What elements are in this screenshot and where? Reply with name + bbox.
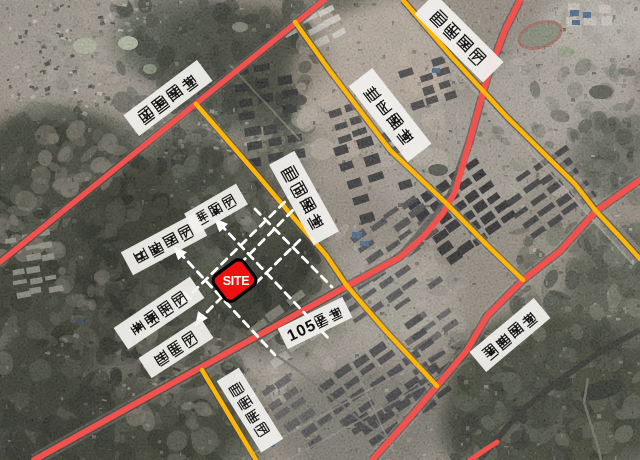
svg-text:SITE: SITE [223, 274, 250, 288]
